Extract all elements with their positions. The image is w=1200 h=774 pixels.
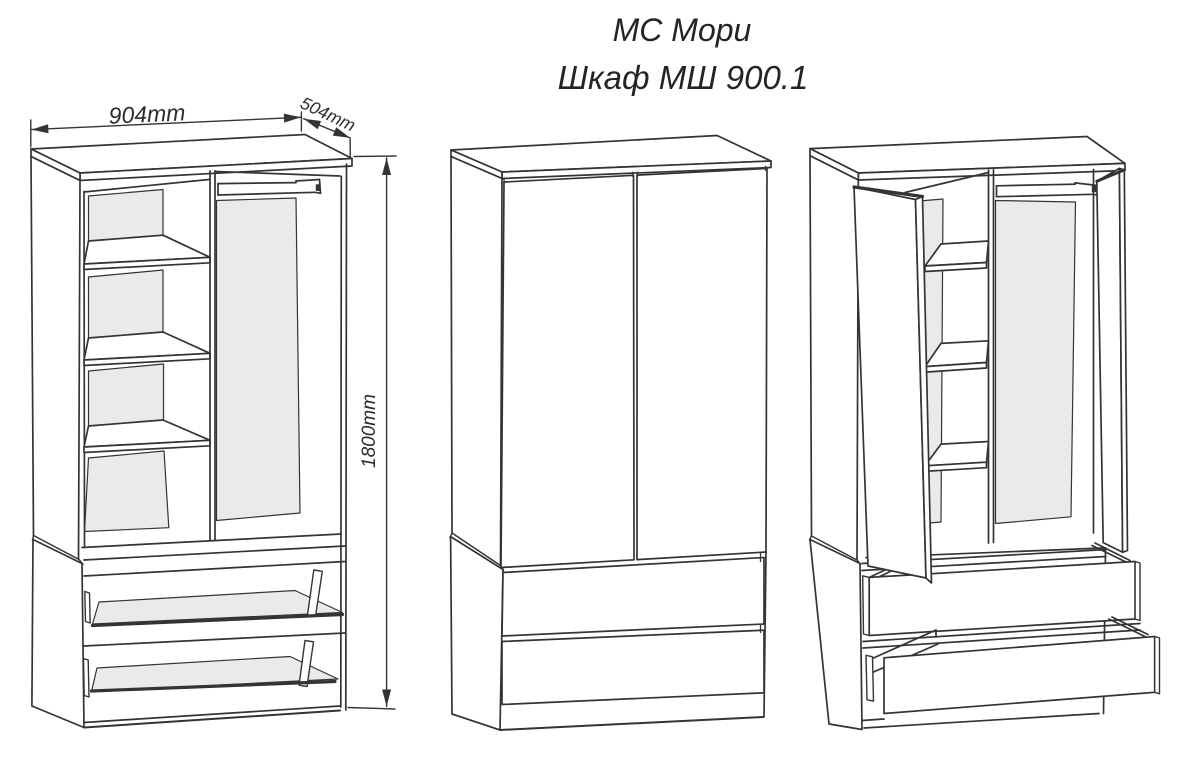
svg-text:МС Мори: МС Мори <box>613 12 752 48</box>
svg-text:1800mm: 1800mm <box>359 394 380 468</box>
svg-text:Шкаф МШ 900.1: Шкаф МШ 900.1 <box>558 59 809 96</box>
svg-text:904mm: 904mm <box>108 99 186 128</box>
